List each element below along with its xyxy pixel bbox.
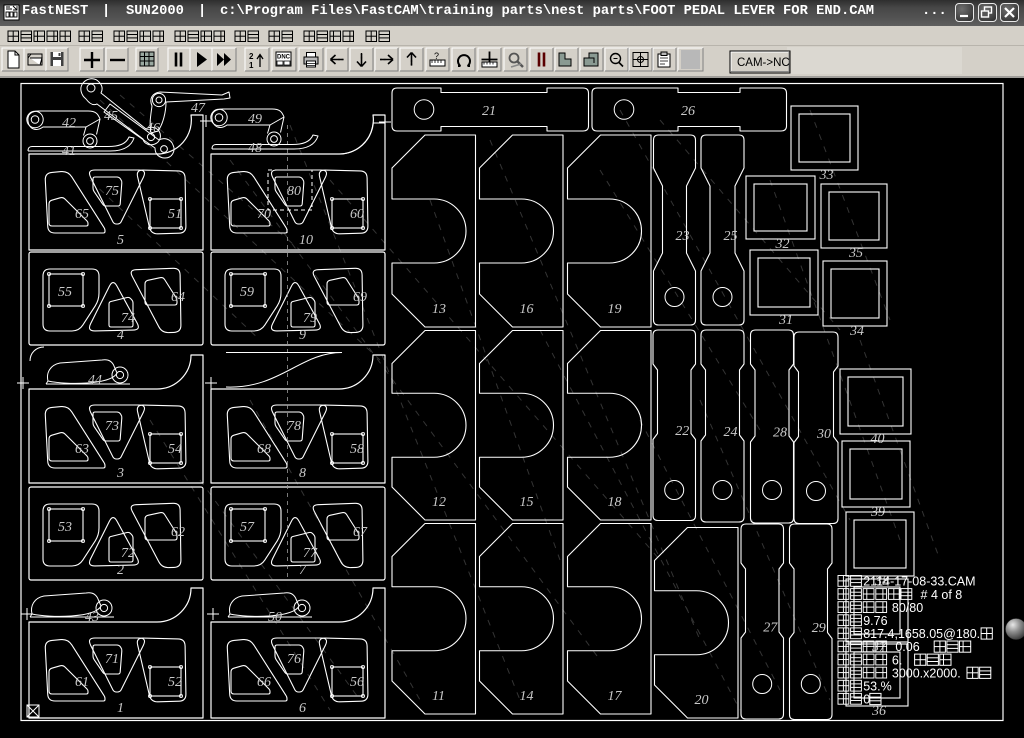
svg-text:78: 78 (287, 419, 301, 434)
svg-text:2: 2 (249, 52, 254, 61)
svg-text:16: 16 (520, 302, 534, 317)
svg-text:3: 3 (116, 466, 124, 481)
svg-text:54: 54 (168, 442, 182, 457)
svg-text:68: 68 (257, 442, 271, 457)
svg-text:8: 8 (299, 466, 306, 481)
svg-text:58: 58 (350, 442, 364, 457)
svg-text:46: 46 (146, 121, 160, 136)
svg-text:DNC: DNC (277, 55, 291, 61)
svg-text:50: 50 (268, 610, 282, 625)
svg-text:77: 77 (303, 546, 318, 561)
svg-text:21: 21 (482, 104, 496, 119)
svg-text:9.76: 9.76 (863, 614, 887, 628)
svg-text:49: 49 (248, 112, 262, 127)
svg-text:55: 55 (58, 285, 72, 300)
svg-text:2: 2 (117, 563, 124, 578)
svg-text:15: 15 (520, 495, 534, 510)
svg-text:67: 67 (353, 525, 368, 540)
svg-text:4: 4 (117, 328, 124, 343)
svg-text:40: 40 (871, 432, 885, 447)
svg-text:41: 41 (62, 144, 76, 159)
svg-text:34: 34 (849, 324, 864, 339)
svg-text:24: 24 (724, 425, 738, 440)
svg-text:28: 28 (773, 426, 787, 441)
svg-text:80: 80 (287, 184, 301, 199)
svg-text:47: 47 (191, 101, 206, 116)
svg-text:26: 26 (681, 104, 695, 119)
svg-text:1: 1 (117, 701, 124, 716)
svg-text:59: 59 (240, 285, 254, 300)
svg-text:14: 14 (520, 689, 534, 704)
svg-text:12: 12 (432, 495, 446, 510)
svg-text:27: 27 (763, 621, 778, 636)
svg-text:57: 57 (240, 520, 255, 535)
svg-text:31: 31 (778, 313, 793, 328)
svg-text:71: 71 (105, 652, 119, 667)
svg-text:6.: 6. (888, 653, 905, 667)
svg-text:43: 43 (85, 610, 99, 625)
svg-text:9: 9 (299, 328, 306, 343)
svg-text:61: 61 (75, 675, 89, 690)
svg-text:0: 0 (863, 693, 870, 707)
svg-text:79: 79 (303, 311, 317, 326)
svg-text:37: 37 (871, 640, 887, 655)
svg-text:69: 69 (353, 290, 367, 305)
svg-text:2114-17-08-33.CAM: 2114-17-08-33.CAM (863, 575, 975, 589)
svg-text:6: 6 (299, 701, 306, 716)
svg-text:18: 18 (608, 495, 622, 510)
svg-text:19: 19 (608, 302, 622, 317)
svg-text:74: 74 (121, 311, 135, 326)
svg-text:52: 52 (168, 675, 182, 690)
svg-text:17: 17 (608, 689, 623, 704)
svg-text:1: 1 (249, 61, 254, 70)
svg-text:10: 10 (299, 233, 313, 248)
svg-text:75: 75 (105, 184, 119, 199)
svg-text:0.06: 0.06 (888, 640, 923, 654)
svg-text:64: 64 (171, 290, 185, 305)
svg-text:60: 60 (350, 207, 364, 222)
svg-text:70: 70 (257, 207, 271, 222)
svg-text:7: 7 (299, 563, 307, 578)
svg-text:3000.x2000.: 3000.x2000. (888, 666, 960, 680)
svg-text:51: 51 (168, 207, 182, 222)
svg-text:13: 13 (432, 302, 446, 317)
svg-text:53.%: 53.% (863, 680, 892, 694)
svg-text:62: 62 (171, 525, 185, 540)
svg-text:25: 25 (724, 229, 738, 244)
svg-text:56: 56 (350, 675, 364, 690)
svg-text:44: 44 (88, 373, 102, 388)
svg-text:76: 76 (287, 652, 301, 667)
svg-text:35: 35 (848, 246, 863, 261)
svg-text:CAM->NC: CAM->NC (737, 57, 790, 69)
svg-text:66: 66 (257, 675, 271, 690)
svg-text:30: 30 (816, 427, 831, 442)
svg-text:23: 23 (676, 229, 690, 244)
svg-text:5: 5 (117, 233, 124, 248)
svg-text:42: 42 (62, 116, 76, 131)
svg-text:# 4 of 8: # 4 of 8 (914, 588, 963, 602)
svg-text:63: 63 (75, 442, 89, 457)
svg-text:65: 65 (75, 207, 89, 222)
svg-text:29: 29 (812, 621, 826, 636)
svg-text:73: 73 (105, 419, 119, 434)
svg-text:53: 53 (58, 520, 72, 535)
svg-text:22: 22 (675, 424, 689, 439)
svg-text:11: 11 (432, 689, 445, 704)
svg-text:80/80: 80/80 (888, 601, 923, 615)
svg-text:36: 36 (871, 704, 886, 719)
svg-text:33: 33 (819, 168, 834, 183)
svg-text:20: 20 (695, 693, 709, 708)
svg-text:817.4,1658.05@180.: 817.4,1658.05@180. (863, 627, 980, 641)
svg-text:72: 72 (121, 546, 135, 561)
